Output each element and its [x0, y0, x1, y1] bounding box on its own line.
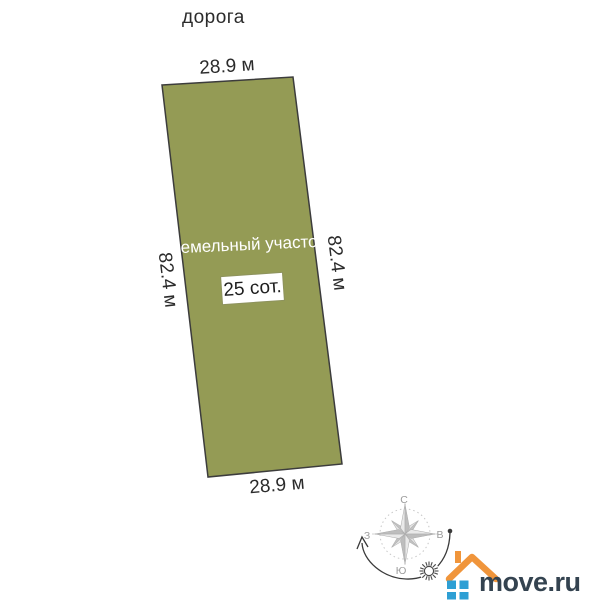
logo-text: move.ru	[479, 567, 581, 598]
compass-east-label: В	[436, 529, 443, 541]
road-label: дорога	[182, 7, 245, 29]
compass-west-label: З	[364, 530, 370, 542]
logo-windows	[447, 581, 469, 600]
plot-area-badge: 25 сот.	[221, 273, 284, 304]
compass-north-label: С	[400, 494, 408, 506]
land-plot-diagram: С Ю З В	[0, 0, 600, 600]
compass-south-label: Ю	[396, 565, 407, 577]
sun-icon	[419, 561, 439, 581]
